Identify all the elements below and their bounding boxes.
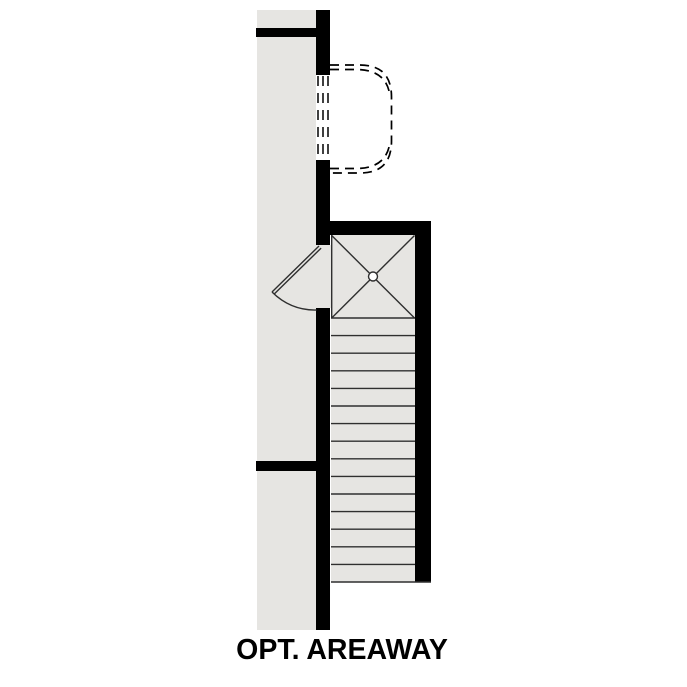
exterior-wall-upper [316,10,330,75]
floor-plan-drawing [0,0,687,687]
exterior-wall-lower [316,308,330,630]
drain-circle [369,272,378,281]
interior-wall-top [256,28,316,37]
floor-plan-canvas: OPT. AREAWAY [0,0,687,687]
door-opening-floor [316,245,331,308]
plan-title: OPT. AREAWAY [236,636,448,665]
areaway-well-outline-inner-bottom [330,145,390,169]
interior-wall-bottom [256,461,316,471]
stair-floor [331,235,415,582]
house-floor-strip [257,10,316,630]
stairwell-right-wall [415,221,431,582]
window-dash-lines [318,76,328,159]
areaway-well-outline-inner-top [330,70,390,94]
exterior-wall-mid [316,160,330,245]
areaway-well-outline-outer [330,65,392,173]
